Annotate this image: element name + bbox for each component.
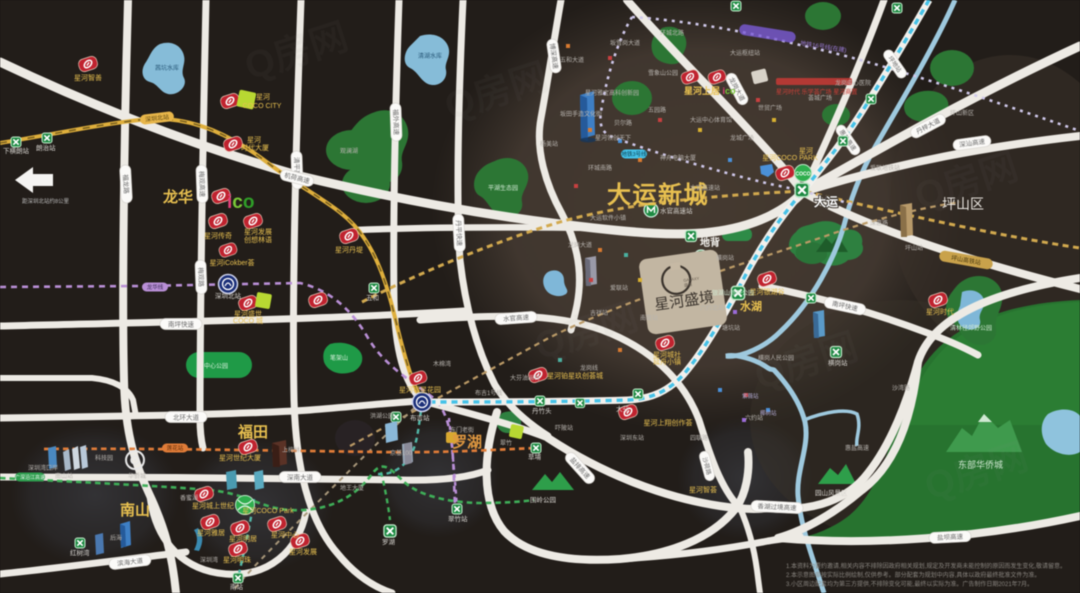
svg-text:龙城广场: 龙城广场 bbox=[730, 134, 754, 142]
svg-text:星河上翔创作荟: 星河上翔创作荟 bbox=[644, 418, 693, 427]
svg-text:园山风景区: 园山风景区 bbox=[815, 488, 848, 497]
svg-text:星河世纪大厦: 星河世纪大厦 bbox=[219, 453, 261, 462]
svg-text:COCO: COCO bbox=[796, 172, 811, 178]
svg-text:上梅林: 上梅林 bbox=[282, 446, 300, 454]
svg-text:星河iCokber荟: 星河iCokber荟 bbox=[209, 258, 254, 267]
svg-text:横岗站: 横岗站 bbox=[716, 254, 734, 262]
svg-text:后海: 后海 bbox=[110, 534, 122, 542]
svg-text:星河领创天下: 星河领创天下 bbox=[595, 134, 631, 142]
svg-text:科技园: 科技园 bbox=[95, 454, 113, 462]
svg-text:世贸广场: 世贸广场 bbox=[758, 104, 782, 112]
svg-text:星河城上世纪: 星河城上世纪 bbox=[192, 501, 234, 510]
svg-text:地铁3号线: 地铁3号线 bbox=[621, 150, 647, 158]
svg-text:3.小区周边配套均为第三方提供,不排除变化可能,最终以实际为: 3.小区周边配套均为第三方提供,不排除变化可能,最终以实际为准。广告制作日期20… bbox=[786, 580, 1033, 588]
svg-text:沙湾路: 沙湾路 bbox=[892, 384, 910, 392]
svg-text:南山站: 南山站 bbox=[55, 472, 73, 480]
svg-text:罗湖: 罗湖 bbox=[452, 434, 482, 451]
svg-text:雪象山公园: 雪象山公园 bbox=[648, 69, 678, 77]
svg-text:福田: 福田 bbox=[237, 423, 268, 441]
svg-text:星河发展: 星河发展 bbox=[244, 227, 272, 236]
svg-text:贝尔路: 贝尔路 bbox=[614, 119, 632, 127]
svg-text:星河盛世: 星河盛世 bbox=[234, 309, 262, 318]
svg-text:星河: 星河 bbox=[247, 136, 261, 144]
svg-text:茜坑水库: 茜坑水库 bbox=[155, 64, 179, 72]
svg-text:布吉1号线: 布吉1号线 bbox=[475, 389, 502, 397]
svg-text:盛境: 盛境 bbox=[684, 281, 693, 288]
svg-text:六约北站: 六约北站 bbox=[700, 304, 724, 312]
svg-text:星河明珠: 星河明珠 bbox=[223, 555, 251, 564]
svg-text:观澜湖: 观澜湖 bbox=[340, 147, 358, 155]
svg-text:坪山站: 坪山站 bbox=[905, 244, 923, 252]
svg-text:清林径郊野公园: 清林径郊野公园 bbox=[950, 324, 992, 332]
svg-text:大芬油画村: 大芬油画村 bbox=[510, 374, 540, 382]
svg-text:地王大厦: 地王大厦 bbox=[340, 484, 364, 492]
svg-text:星河丹堤: 星河丹堤 bbox=[335, 245, 363, 254]
svg-text:星河雅宝高科创新园: 星河雅宝高科创新园 bbox=[585, 89, 639, 97]
svg-text:京基100: 京基100 bbox=[390, 449, 413, 457]
svg-text:星河城社: 星河城社 bbox=[653, 350, 681, 359]
svg-text:环城南路: 环城南路 bbox=[588, 164, 612, 172]
svg-text:洪湖公园: 洪湖公园 bbox=[370, 412, 394, 420]
svg-text:大运软件小镇: 大运软件小镇 bbox=[590, 214, 626, 222]
svg-text:罗湖: 罗湖 bbox=[382, 537, 396, 546]
svg-text:COCO CITY: COCO CITY bbox=[243, 103, 282, 110]
svg-text:延舟小镇: 延舟小镇 bbox=[653, 357, 681, 366]
svg-text:五园路: 五园路 bbox=[648, 106, 666, 114]
svg-text:草埔: 草埔 bbox=[528, 452, 542, 461]
svg-text:爱联站: 爱联站 bbox=[610, 284, 628, 292]
svg-text:星河上居 ico: 星河上居 ico bbox=[684, 85, 736, 96]
svg-text:水湖: 水湖 bbox=[740, 299, 762, 313]
svg-text:坪山新区: 坪山新区 bbox=[950, 109, 974, 117]
svg-text:星河福星花园: 星河福星花园 bbox=[399, 385, 441, 394]
svg-text:水官高速站: 水官高速站 bbox=[660, 206, 693, 215]
svg-text:大芬: 大芬 bbox=[616, 404, 630, 413]
svg-text:星河: 星河 bbox=[799, 147, 813, 155]
svg-text:清湖水库: 清湖水库 bbox=[418, 52, 442, 60]
svg-text:深圳东站: 深圳东站 bbox=[620, 434, 644, 442]
svg-text:1.本资料为要约邀请,相关内容不排除因政府相关规划,规定及开: 1.本资料为要约邀请,相关内容不排除因政府相关规划,规定及开发商未能控制的原因而… bbox=[786, 562, 1066, 570]
svg-text:南山: 南山 bbox=[120, 501, 150, 519]
svg-text:广深沿江高速: 广深沿江高速 bbox=[15, 474, 45, 481]
svg-text:星河中心: 星河中心 bbox=[271, 530, 299, 539]
svg-text:2.本示意图非按实际比例绘制,仅供参考。部分配套为规划中内容: 2.本示意图非按实际比例绘制,仅供参考。部分配套为规划中内容,具体以政府最终批准… bbox=[786, 571, 1040, 579]
svg-text:龙岗大道: 龙岗大道 bbox=[568, 241, 592, 249]
svg-text:围岭公园: 围岭公园 bbox=[530, 495, 556, 504]
svg-text:坂雪岗大道: 坂雪岗大道 bbox=[610, 39, 640, 47]
svg-text:星河发展: 星河发展 bbox=[289, 547, 317, 556]
svg-text:星河传奇: 星河传奇 bbox=[204, 231, 232, 240]
svg-text:爱联地铁站: 爱联地铁站 bbox=[870, 164, 900, 172]
svg-text:龙岗中心医院: 龙岗中心医院 bbox=[835, 79, 871, 87]
svg-text:银湖山郊野公园: 银湖山郊野公园 bbox=[712, 289, 754, 297]
svg-text:华侨城: 华侨城 bbox=[128, 472, 146, 480]
svg-text:星河智善: 星河智善 bbox=[74, 73, 102, 82]
svg-text:布吉站: 布吉站 bbox=[410, 413, 430, 422]
svg-text:深圳北站: 深圳北站 bbox=[215, 291, 242, 300]
svg-text:星河明居: 星河明居 bbox=[229, 535, 257, 543]
svg-text:大运枢纽站: 大运枢纽站 bbox=[730, 49, 760, 57]
svg-text:神舟电脑大厦: 神舟电脑大厦 bbox=[660, 154, 696, 162]
svg-text:创想林语: 创想林语 bbox=[244, 235, 272, 244]
svg-text:星河银湖谷: 星河银湖谷 bbox=[750, 287, 785, 296]
svg-text:时代大厦: 时代大厦 bbox=[241, 143, 269, 152]
svg-text:地背: 地背 bbox=[700, 236, 720, 249]
svg-text:北环大道: 北环大道 bbox=[173, 412, 200, 421]
svg-text:吓陂站: 吓陂站 bbox=[555, 424, 573, 432]
svg-text:星河雅居: 星河雅居 bbox=[197, 528, 225, 537]
svg-text:东门老街: 东门老街 bbox=[450, 426, 474, 434]
svg-text:下横朗站: 下横朗站 bbox=[3, 146, 30, 155]
svg-text:红树湾: 红树湾 bbox=[70, 548, 90, 557]
svg-text:香蜜湖: 香蜜湖 bbox=[180, 494, 198, 502]
svg-text:紫薇站: 紫薇站 bbox=[742, 392, 759, 400]
svg-text:笔架山: 笔架山 bbox=[330, 354, 348, 362]
svg-text:中心公园: 中心公园 bbox=[204, 362, 228, 370]
svg-text:四联路: 四联路 bbox=[690, 434, 708, 442]
svg-text:深南大道: 深南大道 bbox=[287, 472, 314, 481]
svg-text:星河智荟: 星河智荟 bbox=[689, 485, 717, 494]
svg-text:塘坑站: 塘坑站 bbox=[722, 324, 740, 332]
svg-text:深惠路: 深惠路 bbox=[870, 219, 888, 227]
svg-text:南联站: 南联站 bbox=[640, 314, 658, 322]
svg-text:南坪快速: 南坪快速 bbox=[168, 319, 195, 328]
svg-text:龙岗线: 龙岗线 bbox=[580, 364, 598, 372]
svg-text:距深圳北站约8公里: 距深圳北站约8公里 bbox=[22, 197, 70, 205]
svg-text:翠竹站: 翠竹站 bbox=[448, 514, 468, 523]
svg-text:深圳湾: 深圳湾 bbox=[200, 556, 218, 564]
svg-text:COCO 城: COCO 城 bbox=[233, 317, 263, 325]
svg-text:杨美站: 杨美站 bbox=[540, 140, 558, 148]
svg-text:椰树站: 椰树站 bbox=[760, 409, 777, 417]
svg-text:平湖生态园: 平湖生态园 bbox=[488, 184, 518, 192]
svg-text:大运中心体育馆: 大运中心体育馆 bbox=[690, 116, 732, 124]
svg-text:环城北路: 环城北路 bbox=[660, 29, 684, 37]
svg-text:坂田手造文化街: 坂田手造文化街 bbox=[560, 110, 602, 118]
svg-text:水官高速站: 水官高速站 bbox=[690, 184, 720, 192]
svg-text:龙华: 龙华 bbox=[162, 188, 193, 206]
svg-text:丹竹头: 丹竹头 bbox=[532, 406, 552, 415]
svg-text:大运: 大运 bbox=[814, 194, 838, 209]
svg-text:龙华线: 龙华线 bbox=[147, 283, 164, 291]
svg-text:莲花站: 莲花站 bbox=[167, 444, 184, 452]
svg-text:星河: 星河 bbox=[256, 93, 270, 101]
svg-text:朗治站: 朗治站 bbox=[36, 143, 56, 152]
svg-text:惠盐高速: 惠盐高速 bbox=[845, 444, 869, 452]
svg-text:深圳湾口岸: 深圳湾口岸 bbox=[28, 464, 58, 472]
svg-text:五和: 五和 bbox=[366, 293, 379, 302]
svg-text:ico: ico bbox=[227, 192, 254, 213]
svg-text:木棉湾: 木棉湾 bbox=[433, 360, 451, 368]
svg-text:星河时代: 星河时代 bbox=[926, 307, 954, 316]
svg-text:星河铂星玖创荟城: 星河铂星玖创荟城 bbox=[547, 371, 603, 380]
svg-text:星河COCO PARK: 星河COCO PARK bbox=[762, 154, 818, 162]
svg-text:星河COCO Park: 星河COCO Park bbox=[242, 507, 294, 515]
svg-text:五和大道: 五和大道 bbox=[560, 56, 584, 64]
svg-text:翠竹: 翠竹 bbox=[500, 439, 512, 447]
svg-text:星河时代 乐学荟广场 星河商置: 星河时代 乐学荟广场 星河商置 bbox=[776, 88, 857, 96]
svg-text:南站: 南站 bbox=[230, 582, 244, 591]
